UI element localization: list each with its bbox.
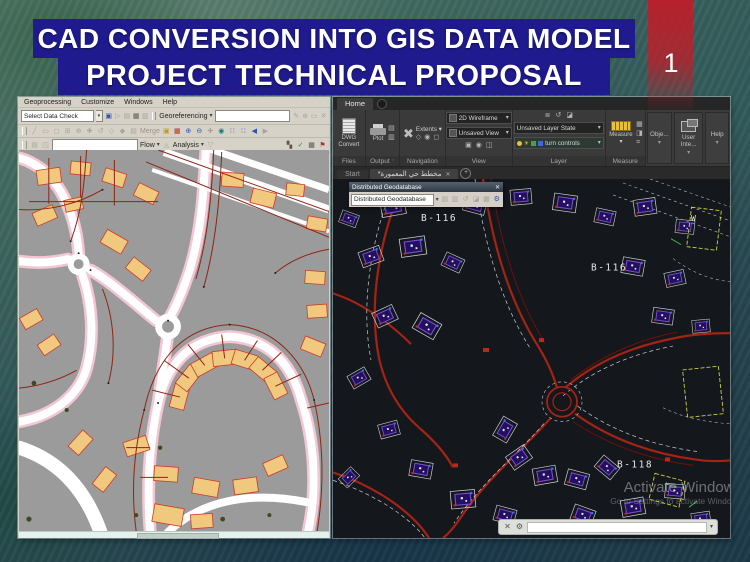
next-extent-icon[interactable]: ▶ [261, 128, 270, 135]
panel-layer: ≣ ↺ ◪ Unsaved Layer State▾ ☀ turn contro… [513, 110, 606, 166]
camera-icon[interactable]: ◉ [476, 142, 482, 149]
horizontal-scrollbar[interactable] [19, 531, 329, 538]
trace-icon[interactable]: ◬ [162, 142, 171, 149]
replica-icon[interactable]: ▦ [482, 196, 490, 203]
arcmap-menubar: Geoprocessing Customize Windows Help [18, 97, 330, 108]
zoom-out-icon[interactable]: ⊖ [195, 128, 204, 135]
layers-icon[interactable]: ▥ [142, 113, 149, 120]
slide-title-line1: CAD CONVERSION INTO GIS DATA MODEL [33, 19, 635, 58]
conflict-icon[interactable]: ◪ [472, 196, 480, 203]
layer-on-bulb-icon [517, 141, 522, 146]
diamond-icon[interactable]: ◇ [107, 128, 116, 135]
flow-menu[interactable]: Flow [140, 142, 155, 149]
image-icon[interactable]: ▦ [133, 113, 140, 120]
panel-files: DWG Convert Files [333, 110, 366, 166]
paste-icon[interactable]: ▦ [636, 121, 643, 128]
panel-layer-label[interactable]: Layer [513, 156, 605, 166]
slide-background: CAD CONVERSION INTO GIS DATA MODEL PROJE… [0, 0, 750, 562]
visual-style-dropdown[interactable]: 2D Wireframe▾ [446, 112, 512, 124]
link-table-icon[interactable]: ▭ [311, 113, 318, 120]
preview-icon[interactable]: ▥ [388, 134, 395, 141]
play-icon[interactable]: ▷ [114, 113, 121, 120]
panel-objects-collapsed[interactable]: Obje...▾ [647, 112, 672, 164]
zoom-extents-icon[interactable]: ✖ [403, 127, 414, 140]
validate-icon[interactable]: ✓ [296, 142, 305, 149]
toolbar-body: Distributed Geodatabase ▾ ▤ ▥ ↺ ◪ ▦ ⚙ [349, 192, 503, 207]
attributes-icon[interactable]: ▤ [129, 128, 138, 135]
wireframe-icon [449, 114, 457, 122]
plot-button[interactable]: Plot [370, 124, 386, 143]
add-data-icon[interactable]: ▣ [105, 113, 112, 120]
analysis-caret-icon[interactable]: ▾ [201, 142, 204, 148]
add-vertex-icon[interactable]: ✚ [85, 128, 94, 135]
panel-view: 2D Wireframe▾ Unsaved View▾ ▣ ◉ ◫ View [446, 110, 513, 166]
close-tab-icon[interactable]: ✕ [445, 171, 450, 178]
checkout-icon[interactable]: ▤ [441, 196, 449, 203]
grid-pair2-icon[interactable]: ∷ [239, 128, 248, 135]
distributed-geodatabase-toolbar[interactable]: Distributed Geodatabase ✕ Distributed Ge… [349, 182, 503, 207]
orbit-icon[interactable]: ◉ [424, 134, 430, 141]
panel-view-label[interactable]: View [446, 156, 512, 166]
select-features-icon[interactable]: ▤ [30, 142, 39, 149]
menu-windows[interactable]: Windows [124, 99, 152, 106]
arcmap-map-canvas[interactable] [19, 150, 329, 532]
page-number: 1 [654, 48, 688, 79]
batch-plot-icon[interactable]: ▤ [388, 125, 395, 132]
view-dropdown[interactable]: Unsaved View▾ [446, 127, 512, 139]
snap-icon[interactable]: ⊕ [74, 128, 83, 135]
panel-measure-label[interactable]: Measure [606, 156, 645, 166]
toolbar-grip[interactable] [152, 112, 156, 120]
pan-icon[interactable]: ✚ [206, 128, 215, 135]
sync-icon[interactable]: ↺ [461, 196, 469, 203]
grid-pair-icon[interactable]: ∷ [228, 128, 237, 135]
layer-sun-icon: ☀ [524, 140, 529, 147]
view-icon [449, 129, 457, 137]
label-b116-b: B-116 [591, 263, 627, 274]
layer-properties-icon[interactable]: ≣ [545, 112, 551, 119]
globe-icon[interactable]: ◉ [217, 128, 226, 135]
flow-caret-icon[interactable]: ▾ [157, 142, 160, 148]
data-check-combo[interactable]: Select Data Check [21, 110, 94, 122]
layer-color-chip [538, 141, 543, 146]
pan-icon[interactable]: ◇ [416, 134, 421, 141]
pencil-icon[interactable]: ✎ [292, 113, 299, 120]
viewport-icon[interactable]: ▣ [465, 142, 472, 149]
rect-tool-icon[interactable]: ▭ [41, 128, 50, 135]
current-layer-dropdown[interactable]: ☀ turn controls▾ [514, 137, 604, 149]
data-check-combo-caret-icon[interactable]: ▾ [96, 110, 103, 122]
arcmap-standard-toolbar: Select Data Check ▾ ▣ ▷ ▤ ▦ ▥ Georeferen… [18, 108, 330, 125]
geodatabase-combo[interactable]: Distributed Geodatabase [351, 194, 434, 206]
panel-output: Plot ▤ ▥ Output▾ [366, 110, 400, 166]
close-command-icon[interactable]: ✕ [503, 523, 512, 531]
cut-icon[interactable]: ◆ [118, 128, 127, 135]
prev-extent-icon[interactable]: ◀ [250, 128, 259, 135]
windows-icon [681, 121, 696, 132]
label-b116-a: B-116 [421, 213, 457, 224]
panel-help-collapsed[interactable]: Help▾ [705, 112, 729, 164]
clear-selection-icon[interactable]: ◳ [41, 142, 50, 149]
ribbon: DWG Convert Files Plot ▤ ▥ Output▾ [333, 110, 730, 167]
polygon-tool-icon[interactable]: ◻ [52, 128, 61, 135]
delete-link-icon[interactable]: ✕ [320, 113, 327, 120]
panel-navigation: ✖ Extents ▾ ◇ ◉ ◻ Navigation [400, 110, 446, 166]
cad-ground [333, 179, 730, 538]
tab-home[interactable]: Home [337, 98, 373, 110]
panel-files-label[interactable]: Files [333, 156, 365, 166]
layer-isolate-icon[interactable]: ◪ [566, 112, 573, 119]
document-icon [342, 118, 356, 134]
scrollbar-thumb[interactable] [137, 533, 219, 539]
toolbar-titlebar[interactable]: Distributed Geodatabase ✕ [349, 182, 503, 192]
grid-tool-icon[interactable]: ⊞ [63, 128, 72, 135]
command-input[interactable] [527, 522, 707, 533]
recent-commands-caret-icon[interactable]: ▾ [710, 524, 713, 530]
toolbar-grip[interactable] [22, 127, 27, 135]
panel-measure: Measure ▾ ▦ ◨ ⌗ Measure [606, 110, 646, 166]
command-bar[interactable]: ✕ ⚙ ▾ [498, 519, 718, 535]
layer-lock-icon [531, 141, 536, 146]
measure-button[interactable]: Measure ▾ [608, 121, 634, 145]
georeferencing-layer-combo[interactable] [215, 110, 291, 122]
menu-customize[interactable]: Customize [81, 99, 114, 106]
geodatabase-combo-caret-icon[interactable]: ▾ [436, 197, 439, 203]
menu-help[interactable]: Help [163, 99, 177, 106]
autocad-window: Home DWG Convert Files Plot [333, 97, 730, 538]
layer-match-icon[interactable]: ↺ [555, 112, 561, 119]
sketch-icon[interactable]: ╱ [30, 128, 39, 135]
dwg-convert-button[interactable]: DWG Convert [335, 118, 363, 148]
flag-icon[interactable]: ⚑ [318, 142, 327, 149]
slide-title-line2: PROJECT TECHNICAL PROPOSAL [58, 58, 610, 95]
menu-geoprocessing[interactable]: Geoprocessing [24, 99, 71, 106]
new-tab-icon[interactable]: + [460, 168, 471, 179]
wheel-icon[interactable]: ◻ [433, 134, 439, 141]
crosshair-icon[interactable]: ⊕ [302, 113, 309, 120]
panel-output-label[interactable]: Output▾ [366, 156, 399, 166]
viewcube-west[interactable]: W [691, 214, 697, 223]
copy-icon[interactable]: ◨ [636, 130, 643, 137]
checkin-icon[interactable]: ▥ [451, 196, 459, 203]
arcmap-window: Geoprocessing Customize Windows Help Sel… [18, 97, 330, 538]
results-icon[interactable]: ▽ [206, 142, 215, 149]
ruler-icon [611, 121, 631, 131]
label-b118: B-118 [617, 459, 653, 470]
merge-menu[interactable]: Merge [140, 128, 160, 135]
match-icon[interactable]: ⌗ [636, 139, 643, 146]
panel-navigation-label[interactable]: Navigation [400, 156, 445, 166]
badge-icon[interactable]: ▚ [285, 142, 294, 149]
connect-icon[interactable]: ⚙ [493, 196, 501, 203]
panel-user-interface-collapsed[interactable]: User Inte...▾ [674, 112, 703, 164]
catalog-icon[interactable]: ▦ [173, 128, 182, 135]
close-icon[interactable]: ✕ [495, 184, 500, 191]
arcmap-editor-toolbar: ╱ ▭ ◻ ⊞ ⊕ ✚ ↺ ◇ ◆ ▤ Merge ▣ ▦ ⊕ ⊖ ✚ ◉ ∷ … [18, 125, 330, 138]
zoom-in-icon[interactable]: ⊕ [184, 128, 193, 135]
georeferencing-menu[interactable]: Georeferencing [159, 113, 207, 120]
autocad-drawing-canvas[interactable]: B-116 B-116 B-118 W Distributed Geodatab… [333, 179, 730, 538]
summary-icon[interactable]: ▦ [307, 142, 316, 149]
customize-command-icon[interactable]: ⚙ [515, 523, 524, 531]
toolbar-grip[interactable] [22, 141, 27, 149]
table-icon[interactable]: ▤ [123, 113, 130, 120]
extents-dropdown[interactable]: Extents ▾ [416, 126, 442, 133]
rotate-icon[interactable]: ↺ [96, 128, 105, 135]
layer-state-dropdown[interactable]: Unsaved Layer State▾ [514, 122, 604, 134]
georeferencing-caret-icon[interactable]: ▾ [210, 113, 213, 119]
record-circle-icon[interactable] [377, 99, 387, 109]
printer-icon [370, 124, 386, 135]
motion-icon[interactable]: ◫ [486, 142, 493, 149]
analysis-menu[interactable]: Analysis [173, 142, 199, 149]
new-map-icon[interactable]: ▣ [162, 128, 171, 135]
